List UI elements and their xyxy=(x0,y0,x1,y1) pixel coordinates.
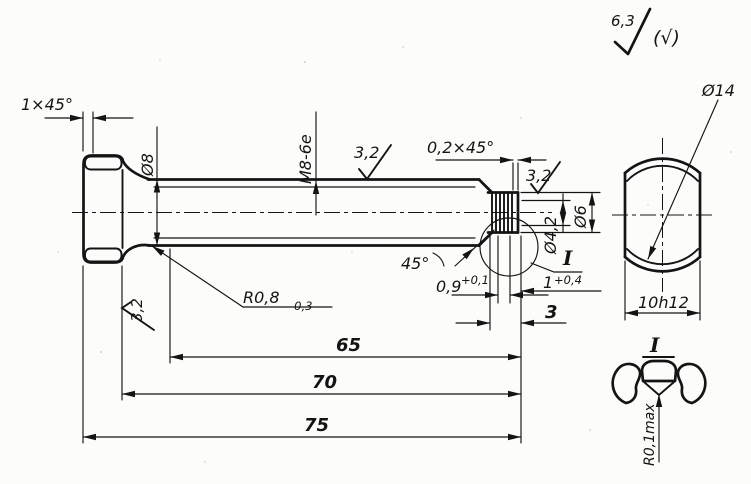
dim-shank-diameter: Ø8 xyxy=(138,127,160,246)
tip-roughness-text: 3,2 xyxy=(526,166,551,185)
groove-root-radius-callout: R0,1max xyxy=(642,394,662,466)
detail-title: I xyxy=(649,333,660,357)
thread-spec-text: M8-6e xyxy=(296,134,315,184)
head-top-chamfer-facet xyxy=(85,157,122,170)
tip-diameter-text: Ø6 xyxy=(571,205,590,229)
head-chamfer-text: 1×45° xyxy=(21,95,73,114)
head-roughness-mark: 3,2 xyxy=(122,298,154,330)
head-diameter-text: Ø14 xyxy=(701,81,735,100)
fillet-radius-text: R0,8 xyxy=(243,288,280,307)
head-bottom-chamfer-facet xyxy=(85,249,122,262)
main-view: I 1×45° Ø8 M8-6e 3,2 xyxy=(21,95,601,443)
tip-length-text: 3 xyxy=(545,302,558,323)
fillet-radius-tol: -0,3 xyxy=(290,299,312,313)
dim-land-width: 1 +0,4 xyxy=(521,273,601,294)
land-width-tol: +0,4 xyxy=(554,273,582,287)
groove-root-radius-text: R0,1max xyxy=(642,403,658,466)
drawing-sheet: I 1×45° Ø8 M8-6e 3,2 xyxy=(0,0,751,484)
shaft-roughness-mark: 3,2 xyxy=(354,143,391,179)
dim-head-chamfer: 1×45° xyxy=(21,95,133,153)
groove-width-tol: +0,1 xyxy=(461,273,489,287)
thread-callout: M8-6e xyxy=(296,112,319,215)
end-view: Ø14 10h12 xyxy=(612,81,735,320)
dim-thread-length: 65 xyxy=(170,236,521,443)
detail-view: I R0,1max xyxy=(613,333,706,466)
fillet-radius-callout: R0,8 -0,3 xyxy=(150,243,332,313)
groove-diameter-text: Ø4,2 xyxy=(541,216,560,255)
dim-head-diameter: Ø14 xyxy=(645,81,735,260)
detail-leader xyxy=(531,263,582,272)
groove-width-text: 0,9 xyxy=(436,277,461,296)
tip-roughness-mark: 3,2 xyxy=(526,162,560,193)
shank-diameter-text: Ø8 xyxy=(138,153,157,177)
bolt-drawing: I 1×45° Ø8 M8-6e 3,2 xyxy=(0,0,751,484)
shank-length-text: 70 xyxy=(312,372,337,393)
surface-finish-note: 6,3 (√) xyxy=(611,9,680,54)
finish-collective-text: (√) xyxy=(653,27,680,49)
thread-length-text: 65 xyxy=(336,335,361,356)
head-roughness-text: 3,2 xyxy=(128,298,146,322)
finish-value-text: 6,3 xyxy=(611,12,635,30)
chamfer-angle-text: 45° xyxy=(401,254,429,273)
land-width-text: 1 xyxy=(543,273,553,292)
shaft-roughness-text: 3,2 xyxy=(354,143,379,162)
tip-chamfer-top xyxy=(479,180,492,193)
total-length-text: 75 xyxy=(304,415,329,436)
tip-chamfer-text: 0,2×45° xyxy=(427,138,494,157)
detail-circle xyxy=(480,218,538,276)
detail-ref-label: I xyxy=(562,246,573,270)
across-flats-text: 10h12 xyxy=(638,293,689,312)
